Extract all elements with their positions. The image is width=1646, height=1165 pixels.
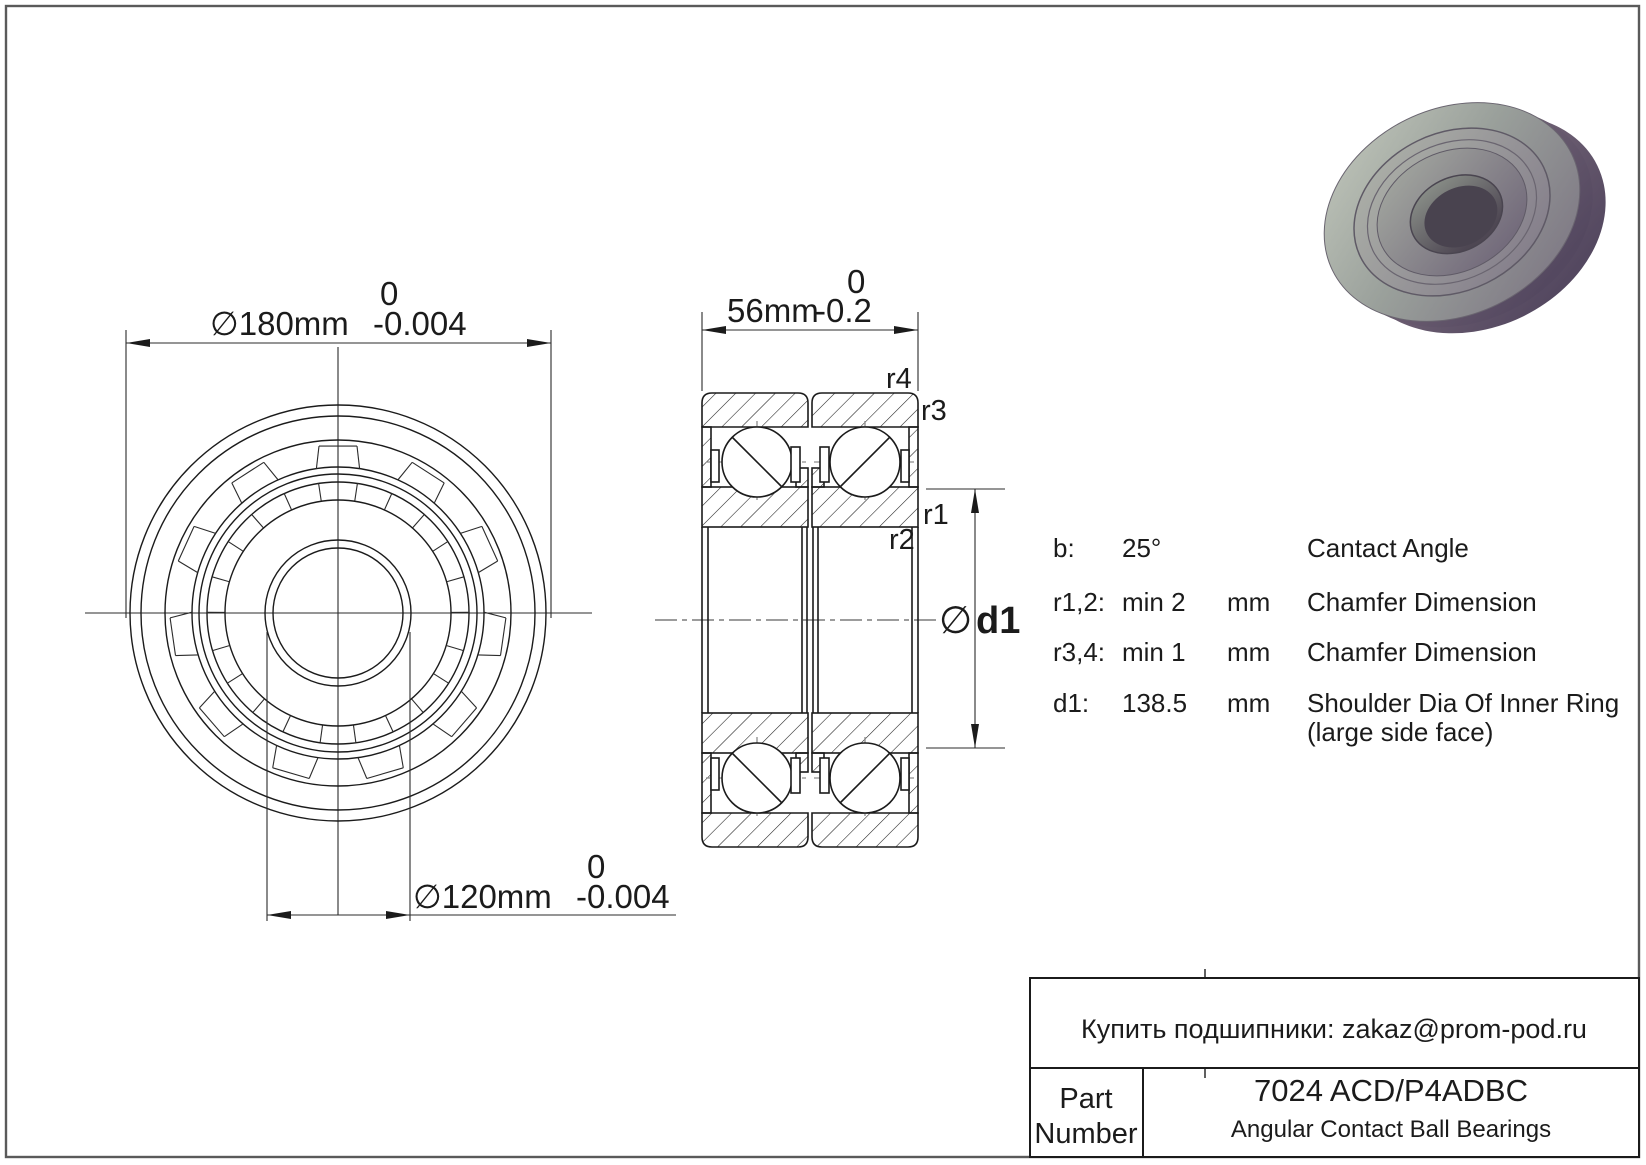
width-dim-text: 56mm (727, 292, 819, 329)
spec-key: r3,4: (1053, 637, 1105, 667)
cage-section (711, 450, 719, 482)
spec-key: r1,2: (1053, 587, 1105, 617)
spec-unit: mm (1227, 587, 1270, 617)
part-number-value: 7024 ACD/P4ADBC (1254, 1073, 1528, 1108)
spec-table: b: 25° Cantact Angle r1,2: min 2 mm Cham… (1053, 533, 1619, 747)
d1-dim-text: d1 (976, 600, 1020, 642)
cage-section (711, 758, 719, 790)
title-block: Купить подшипники: zakaz@prom-pod.ru Par… (1030, 969, 1639, 1157)
front-view: ∅180mm -0.004 0 ∅120mm -0.004 0 (85, 275, 676, 921)
spec-value: min 1 (1122, 637, 1186, 667)
spec-desc: Chamfer Dimension (1307, 637, 1537, 667)
bearing-category: Angular Contact Ball Bearings (1231, 1116, 1551, 1143)
drawing-page: ∅180mm -0.004 0 ∅120mm -0.004 0 56m (0, 0, 1646, 1165)
cage-section (791, 758, 800, 793)
cage-section (820, 758, 829, 793)
spec-unit: mm (1227, 688, 1270, 718)
spec-value: min 2 (1122, 587, 1186, 617)
od-dim-text: ∅180mm (210, 305, 349, 342)
bore-dim-tol-upper: 0 (587, 848, 605, 885)
od-dim-tol-upper: 0 (380, 275, 398, 312)
spec-desc: Chamfer Dimension (1307, 587, 1537, 617)
drawing-canvas: ∅180mm -0.004 0 ∅120mm -0.004 0 56m (0, 0, 1646, 1165)
spec-unit: mm (1227, 637, 1270, 667)
spec-key: b: (1053, 533, 1075, 563)
spec-desc: Shoulder Dia Of Inner Ring (1307, 688, 1619, 718)
bore-dimension: ∅120mm -0.004 0 (267, 632, 676, 921)
d1-dim-symbol: ∅ (939, 600, 972, 642)
bore-dim-text: ∅120mm (413, 878, 552, 915)
width-dim-tol-upper: 0 (847, 263, 865, 300)
spec-desc: Cantact Angle (1307, 533, 1469, 563)
spec-value: 25° (1122, 533, 1161, 563)
contact-email-text: Купить подшипники: zakaz@prom-pod.ru (1081, 1014, 1587, 1044)
cage-section (791, 447, 800, 482)
spec-value: 138.5 (1122, 688, 1187, 718)
cage-section (901, 450, 909, 482)
cage-section (820, 447, 829, 482)
section-view: 56mm -0.2 0 (655, 263, 1020, 847)
spec-desc2: (large side face) (1307, 717, 1493, 747)
chamfer-label-r3: r3 (921, 395, 947, 427)
chamfer-label-r1: r1 (923, 499, 949, 531)
spec-key: d1: (1053, 688, 1089, 718)
chamfer-label-r4: r4 (886, 363, 912, 395)
chamfer-label-r2: r2 (889, 524, 915, 556)
cage-section (901, 758, 909, 790)
part-label-line1: Part (1059, 1083, 1112, 1115)
part-label-line2: Number (1034, 1118, 1137, 1150)
bearing-3d-render (1287, 53, 1642, 382)
